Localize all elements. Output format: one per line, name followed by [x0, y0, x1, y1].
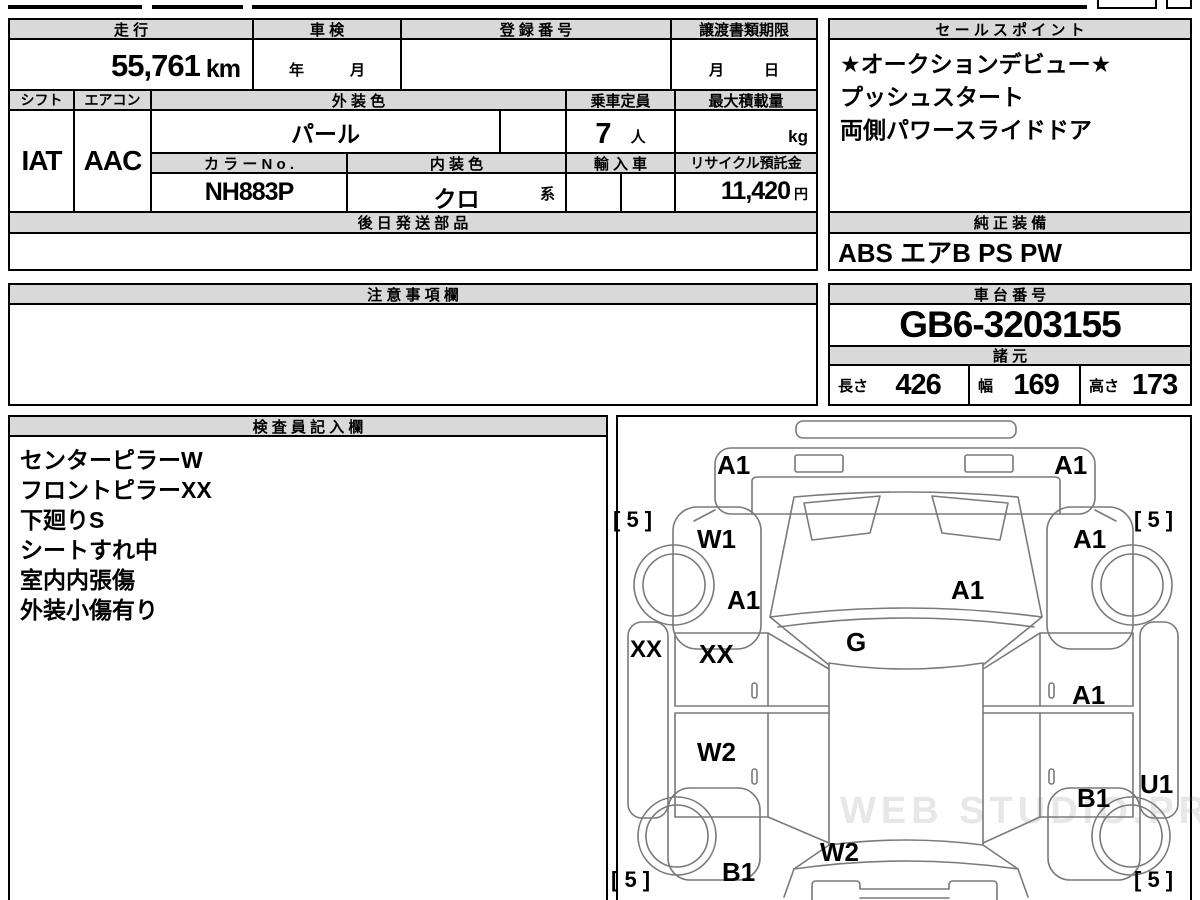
- inspector-notes-header: 検 査 員 記 入 欄: [8, 415, 608, 437]
- transfer-deadline-value-cell: 月 日: [670, 38, 818, 91]
- transfer-day-label: 日: [764, 59, 779, 80]
- diagram-label-rear-hatch: W2: [820, 839, 859, 865]
- top-cut-border-1: [8, 5, 142, 9]
- imported-header: 輸 入 車: [565, 152, 676, 174]
- diagram-label-cowl-left: A1: [727, 587, 760, 613]
- diagram-label-tire-front-right: [ 5 ]: [1134, 509, 1173, 531]
- notes-body: [8, 303, 818, 406]
- exterior-color-value: パール: [291, 115, 360, 149]
- registration-header: 登 録 番 号: [400, 18, 672, 40]
- inspection-month-label: 月: [350, 59, 365, 80]
- recycle-deposit-header: リサイクル預託金: [674, 152, 818, 174]
- chassis-no-value: GB6-3203155: [899, 304, 1120, 346]
- mileage-value-cell: 55,761 km: [8, 38, 254, 91]
- top-cut-border-2: [152, 5, 243, 9]
- transfer-month-label: 月: [709, 59, 724, 80]
- diagram-label-tire-rear-right: [ 5 ]: [1134, 869, 1173, 891]
- top-cut-border-3: [252, 5, 1087, 9]
- recycle-deposit-value-cell: 11,420 円: [674, 172, 818, 213]
- aircon-header: エアコン: [73, 89, 152, 111]
- color-no-value: NH883P: [205, 178, 294, 207]
- max-load-unit: kg: [788, 127, 808, 147]
- mileage-unit: km: [206, 55, 240, 84]
- spec-height-value: 173: [1119, 369, 1190, 402]
- interior-color-suffix: 系: [540, 183, 555, 204]
- spec-height-cell: 高さ 173: [1079, 364, 1192, 406]
- imported-value-cell-a: [565, 172, 622, 213]
- sales-points-header: セ ー ル ス ポ イ ン ト: [828, 18, 1192, 40]
- inspection-value-cell: 年 月: [252, 38, 402, 91]
- inspector-note-line: シートすれ中: [20, 535, 596, 565]
- mileage-value: 55,761: [111, 48, 200, 84]
- color-no-value-cell: NH883P: [150, 172, 348, 213]
- spec-width-cell: 幅 169: [968, 364, 1081, 406]
- shift-value-cell: IAT: [8, 109, 75, 213]
- spec-length-label: 長さ: [838, 375, 868, 396]
- max-load-value-cell: kg: [674, 109, 818, 154]
- sales-point-line: プッシュスタート: [840, 81, 1180, 114]
- capacity-value-cell: 7 人: [565, 109, 676, 154]
- mileage-header: 走 行: [8, 18, 254, 40]
- specs-header: 諸 元: [828, 345, 1192, 366]
- exterior-color-sub-cell: [499, 109, 567, 154]
- top-cut-cell-1: [1097, 0, 1157, 9]
- diagram-label-rear-door-left: W2: [697, 739, 736, 765]
- chassis-no-value-cell: GB6-3203155: [828, 303, 1192, 347]
- notes-header: 注 意 事 項 欄: [8, 283, 818, 305]
- shift-header: シフト: [8, 89, 75, 111]
- later-parts-value-cell: [8, 232, 818, 271]
- diagram-label-sill-right: U1: [1140, 771, 1173, 797]
- spec-width-label: 幅: [978, 375, 993, 396]
- spec-width-value: 169: [993, 369, 1079, 402]
- exterior-color-header: 外 装 色: [150, 89, 567, 111]
- transfer-deadline-header: 譲渡書類期限: [670, 18, 818, 40]
- diagram-label-roof: G: [846, 629, 866, 655]
- chassis-no-header: 車 台 番 号: [828, 283, 1192, 305]
- diagram-label-front-bumper-right: A1: [1054, 452, 1087, 478]
- diagram-label-front-fender-left: W1: [697, 526, 736, 552]
- diagram-label-rear-door-right: B1: [1077, 785, 1110, 811]
- genuine-equipment-value-cell: ABS エアB PS PW: [828, 232, 1192, 271]
- spec-height-label: 高さ: [1089, 375, 1119, 396]
- aircon-value-cell: AAC: [73, 109, 152, 213]
- sales-points-body: ★オークションデビュー★ プッシュスタート 両側パワースライドドア: [828, 38, 1192, 213]
- spec-length-cell: 長さ 426: [828, 364, 970, 406]
- sales-point-line: ★オークションデビュー★: [840, 48, 1180, 81]
- inspector-notes-body: センターピラーW フロントピラーXX 下廻りS シートすれ中 室内内張傷 外装小…: [8, 435, 608, 900]
- recycle-deposit-unit: 円: [794, 184, 808, 206]
- diagram-label-rear-fender-left: B1: [722, 859, 755, 885]
- recycle-deposit-value: 11,420: [721, 177, 790, 206]
- registration-value-cell: [400, 38, 672, 91]
- inspection-header: 車 検: [252, 18, 402, 40]
- capacity-header: 乗車定員: [565, 89, 676, 111]
- interior-color-value-cell: クロ 系: [346, 172, 567, 213]
- auction-sheet: 走 行 車 検 登 録 番 号 譲渡書類期限 55,761 km 年 月 月 日…: [0, 0, 1200, 900]
- imported-value-cell-b: [620, 172, 676, 213]
- inspector-note-line: 下廻りS: [20, 505, 596, 535]
- sales-point-line: 両側パワースライドドア: [840, 114, 1180, 147]
- inspector-note-line: フロントピラーXX: [20, 475, 596, 505]
- diagram-label-tire-rear-left: [ 5 ]: [611, 869, 650, 891]
- diagram-label-sill-left: XX: [630, 638, 662, 662]
- capacity-unit: 人: [631, 126, 646, 147]
- diagram-label-windshield: A1: [951, 577, 984, 603]
- interior-color-value: クロ: [348, 180, 565, 214]
- spec-length-value: 426: [868, 369, 968, 402]
- inspector-note-line: センターピラーW: [20, 445, 596, 475]
- diagram-label-tire-front-left: [ 5 ]: [613, 509, 652, 531]
- interior-color-header: 内 装 色: [346, 152, 567, 174]
- capacity-value: 7: [595, 121, 610, 147]
- inspection-year-label: 年: [289, 59, 304, 80]
- later-parts-header: 後 日 発 送 部 品: [8, 211, 818, 234]
- inspector-note-line: 外装小傷有り: [20, 595, 596, 625]
- diagram-label-front-bumper-left: A1: [717, 452, 750, 478]
- genuine-equipment-value: ABS エアB PS PW: [838, 233, 1062, 270]
- diagram-label-front-door-right: A1: [1072, 682, 1105, 708]
- inspector-note-line: 室内内張傷: [20, 565, 596, 595]
- aircon-value: AAC: [84, 145, 142, 177]
- diagram-label-front-door-left: XX: [699, 641, 734, 667]
- top-cut-cell-2: [1166, 0, 1192, 9]
- max-load-header: 最大積載量: [674, 89, 818, 111]
- exterior-color-value-cell: パール: [150, 109, 501, 154]
- diagram-label-front-fender-right: A1: [1073, 526, 1106, 552]
- shift-value: IAT: [21, 145, 61, 177]
- genuine-equipment-header: 純 正 装 備: [828, 211, 1192, 234]
- color-no-header: カ ラ ー N o .: [150, 152, 348, 174]
